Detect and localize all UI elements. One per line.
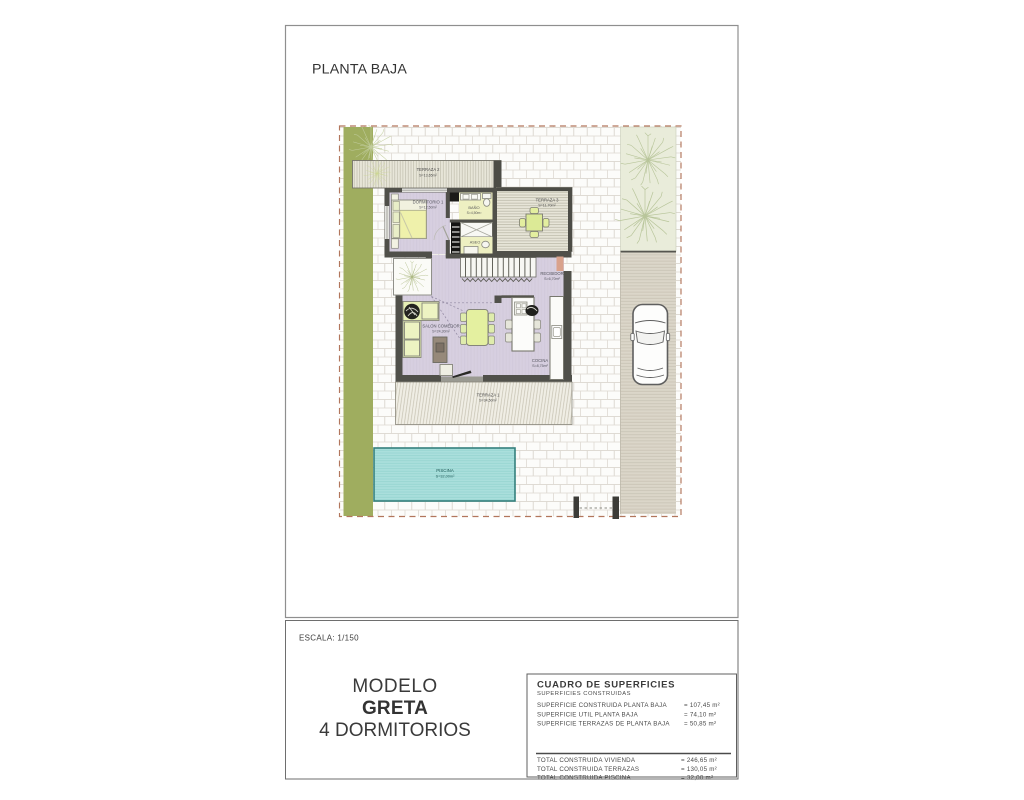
svg-text:SUPERFICIE CONSTRUIDA PLANTA B: SUPERFICIE CONSTRUIDA PLANTA BAJA <box>537 702 667 709</box>
svg-text:TERRAZA 2: TERRAZA 2 <box>417 167 440 172</box>
svg-text:S=13,65m²: S=13,65m² <box>419 174 437 178</box>
svg-text:ESCALA: 1/150: ESCALA: 1/150 <box>299 634 359 643</box>
svg-text:RECIBIDOR: RECIBIDOR <box>540 271 563 276</box>
svg-text:CUADRO DE SUPERFICIES: CUADRO DE SUPERFICIES <box>537 680 675 691</box>
svg-text:4 DORMITORIOS: 4 DORMITORIOS <box>319 720 471 741</box>
svg-text:GRETA: GRETA <box>362 698 428 719</box>
svg-text:SUPERFICIE UTIL PLANTA BAJA: SUPERFICIE UTIL PLANTA BAJA <box>537 711 639 718</box>
svg-text:TOTAL CONSTRUIDA VIVIENDA: TOTAL CONSTRUIDA VIVIENDA <box>537 757 636 764</box>
svg-text:SUPERFICIE TERRAZAS DE PLANTA: SUPERFICIE TERRAZAS DE PLANTA BAJA <box>537 721 670 728</box>
svg-text:MODELO: MODELO <box>352 676 437 697</box>
svg-text:TOTAL CONSTRUIDA PISCINA: TOTAL CONSTRUIDA PISCINA <box>537 775 632 782</box>
svg-text:S=34,50m²: S=34,50m² <box>479 399 497 403</box>
svg-text:TERRAZA 1: TERRAZA 1 <box>477 393 500 398</box>
svg-text:BAÑO: BAÑO <box>468 205 479 210</box>
svg-text:PLANTA BAJA: PLANTA BAJA <box>312 62 407 78</box>
svg-text:TERRAZA 3: TERRAZA 3 <box>536 198 559 203</box>
svg-text:PISCINA: PISCINA <box>436 468 454 473</box>
svg-text:S=12,50m²: S=12,50m² <box>419 206 437 210</box>
svg-text:TOTAL CONSTRUIDA TERRAZAS: TOTAL CONSTRUIDA TERRAZAS <box>537 766 639 773</box>
svg-text:S=11,70m²: S=11,70m² <box>538 204 556 208</box>
svg-text:= 130,05 m²: = 130,05 m² <box>681 766 717 773</box>
svg-text:ASEO: ASEO <box>470 241 481 245</box>
svg-text:S=4,50m²: S=4,50m² <box>467 211 483 215</box>
svg-text:= 32,00 m²: = 32,00 m² <box>681 775 713 782</box>
svg-text:SUPERFICIES CONSTRUIDAS: SUPERFICIES CONSTRUIDAS <box>537 691 631 697</box>
svg-text:S=8,75m²: S=8,75m² <box>532 364 548 368</box>
svg-text:= 74,10 m²: = 74,10 m² <box>684 711 716 718</box>
svg-text:COCINA: COCINA <box>532 358 548 363</box>
svg-text:S=6,70m²: S=6,70m² <box>544 277 560 281</box>
svg-text:S=24,30m²: S=24,30m² <box>432 330 450 334</box>
svg-text:SALON COMEDOR: SALON COMEDOR <box>422 324 459 329</box>
svg-text:= 246,65 m²: = 246,65 m² <box>681 757 717 764</box>
svg-text:DORMITORIO 1: DORMITORIO 1 <box>413 200 444 205</box>
svg-text:= 107,45 m²: = 107,45 m² <box>684 702 720 709</box>
svg-text:S=32,00m²: S=32,00m² <box>436 475 455 479</box>
svg-text:= 50,85 m²: = 50,85 m² <box>684 721 716 728</box>
